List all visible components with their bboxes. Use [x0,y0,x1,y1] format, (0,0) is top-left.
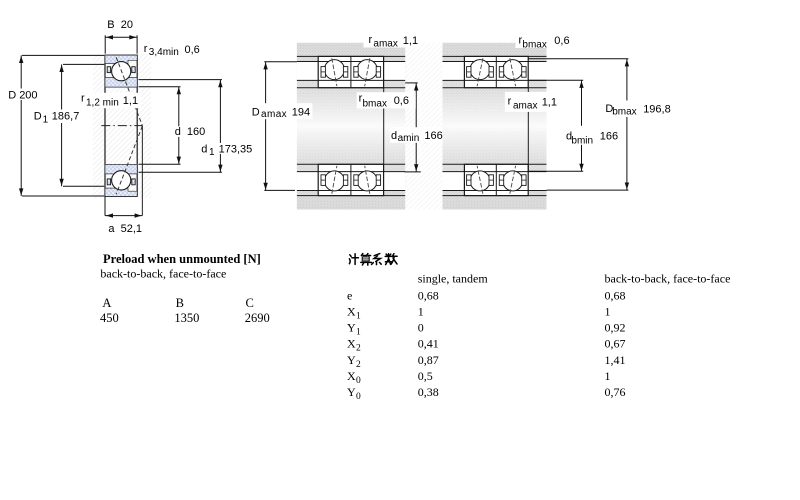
svg-text:d: d [201,143,207,155]
svg-text:r: r [508,95,512,107]
svg-text:C: C [246,296,254,310]
svg-text:1: 1 [605,305,611,319]
svg-text:d 160: d 160 [175,126,206,138]
svg-text:D: D [34,111,42,123]
svg-text:2: 2 [356,360,361,370]
svg-text:D 200: D 200 [8,89,37,101]
svg-text:r: r [81,93,85,105]
svg-text:bmax: bmax [363,99,387,110]
svg-text:3,4min: 3,4min [149,47,179,58]
svg-text:amax: amax [513,100,537,111]
svg-text:1: 1 [356,312,361,322]
svg-text:2: 2 [356,344,361,354]
svg-text:amin: amin [398,133,420,144]
svg-text:194: 194 [292,106,310,118]
svg-text:1: 1 [356,328,361,338]
svg-text:2690: 2690 [245,311,270,325]
svg-text:0,67: 0,67 [605,337,626,351]
svg-text:0,68: 0,68 [418,288,439,302]
svg-text:166: 166 [600,130,618,142]
svg-text:0,68: 0,68 [605,288,626,302]
svg-text:1,1: 1,1 [403,35,418,47]
svg-text:a 52,1: a 52,1 [108,223,142,235]
svg-text:450: 450 [100,311,119,325]
svg-text:1: 1 [43,114,49,125]
svg-text:1,41: 1,41 [605,353,626,367]
svg-text:0: 0 [356,376,361,386]
svg-text:bmax: bmax [612,107,636,118]
svg-text:e: e [347,288,352,302]
svg-text:d: d [391,130,397,142]
svg-text:196,8: 196,8 [643,103,671,115]
svg-text:Preload when unmounted [N]: Preload when unmounted [N] [103,252,261,266]
svg-text:r: r [369,34,373,46]
svg-text:173,35: 173,35 [219,143,253,155]
svg-text:1: 1 [209,147,215,158]
svg-text:0: 0 [356,392,361,402]
svg-text:1,2 min: 1,2 min [86,97,119,108]
svg-text:0: 0 [418,321,424,335]
svg-text:0,87: 0,87 [418,353,439,367]
svg-text:X: X [347,305,356,319]
svg-text:166: 166 [424,130,442,142]
svg-text:0,6: 0,6 [185,44,200,56]
svg-text:back-to-back, face-to-face: back-to-back, face-to-face [100,267,226,281]
svg-text:single, tandem: single, tandem [418,271,489,285]
svg-text:r: r [144,43,148,55]
svg-text:0,5: 0,5 [418,369,433,383]
svg-text:0,6: 0,6 [554,35,569,47]
svg-text:amax: amax [261,109,287,120]
svg-text:0,41: 0,41 [418,337,439,351]
svg-text:back-to-back, face-to-face: back-to-back, face-to-face [605,271,731,285]
svg-text:amax: amax [373,38,397,49]
svg-text:A: A [102,296,111,310]
svg-text:bmin: bmin [571,135,593,146]
svg-text:1350: 1350 [174,311,199,325]
svg-text:Y: Y [347,385,356,399]
svg-text:X: X [347,337,356,351]
svg-text:X: X [347,369,356,383]
svg-text:186,7: 186,7 [52,111,80,123]
svg-text:1,1: 1,1 [123,95,138,107]
svg-text:1: 1 [605,369,611,383]
svg-text:bmax: bmax [522,39,546,50]
svg-text:1,1: 1,1 [542,97,557,109]
svg-text:B: B [176,296,184,310]
svg-text:1: 1 [418,305,424,319]
svg-text:Y: Y [347,353,356,367]
svg-text:0,38: 0,38 [418,385,439,399]
svg-text:0,6: 0,6 [394,95,409,107]
svg-text:0,76: 0,76 [605,385,626,399]
svg-text:0,92: 0,92 [605,321,626,335]
svg-text:D: D [252,106,260,118]
svg-text:B 20: B 20 [107,19,133,31]
svg-text:Y: Y [347,321,356,335]
